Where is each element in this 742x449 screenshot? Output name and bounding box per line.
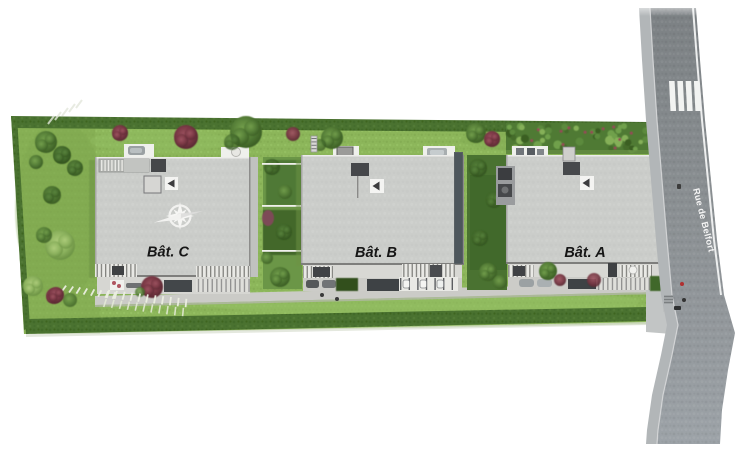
svg-text:Bât. A: Bât. A (564, 245, 605, 261)
svg-text:Bât. B: Bât. B (355, 245, 397, 261)
svg-text:Bât. C: Bât. C (147, 245, 189, 261)
